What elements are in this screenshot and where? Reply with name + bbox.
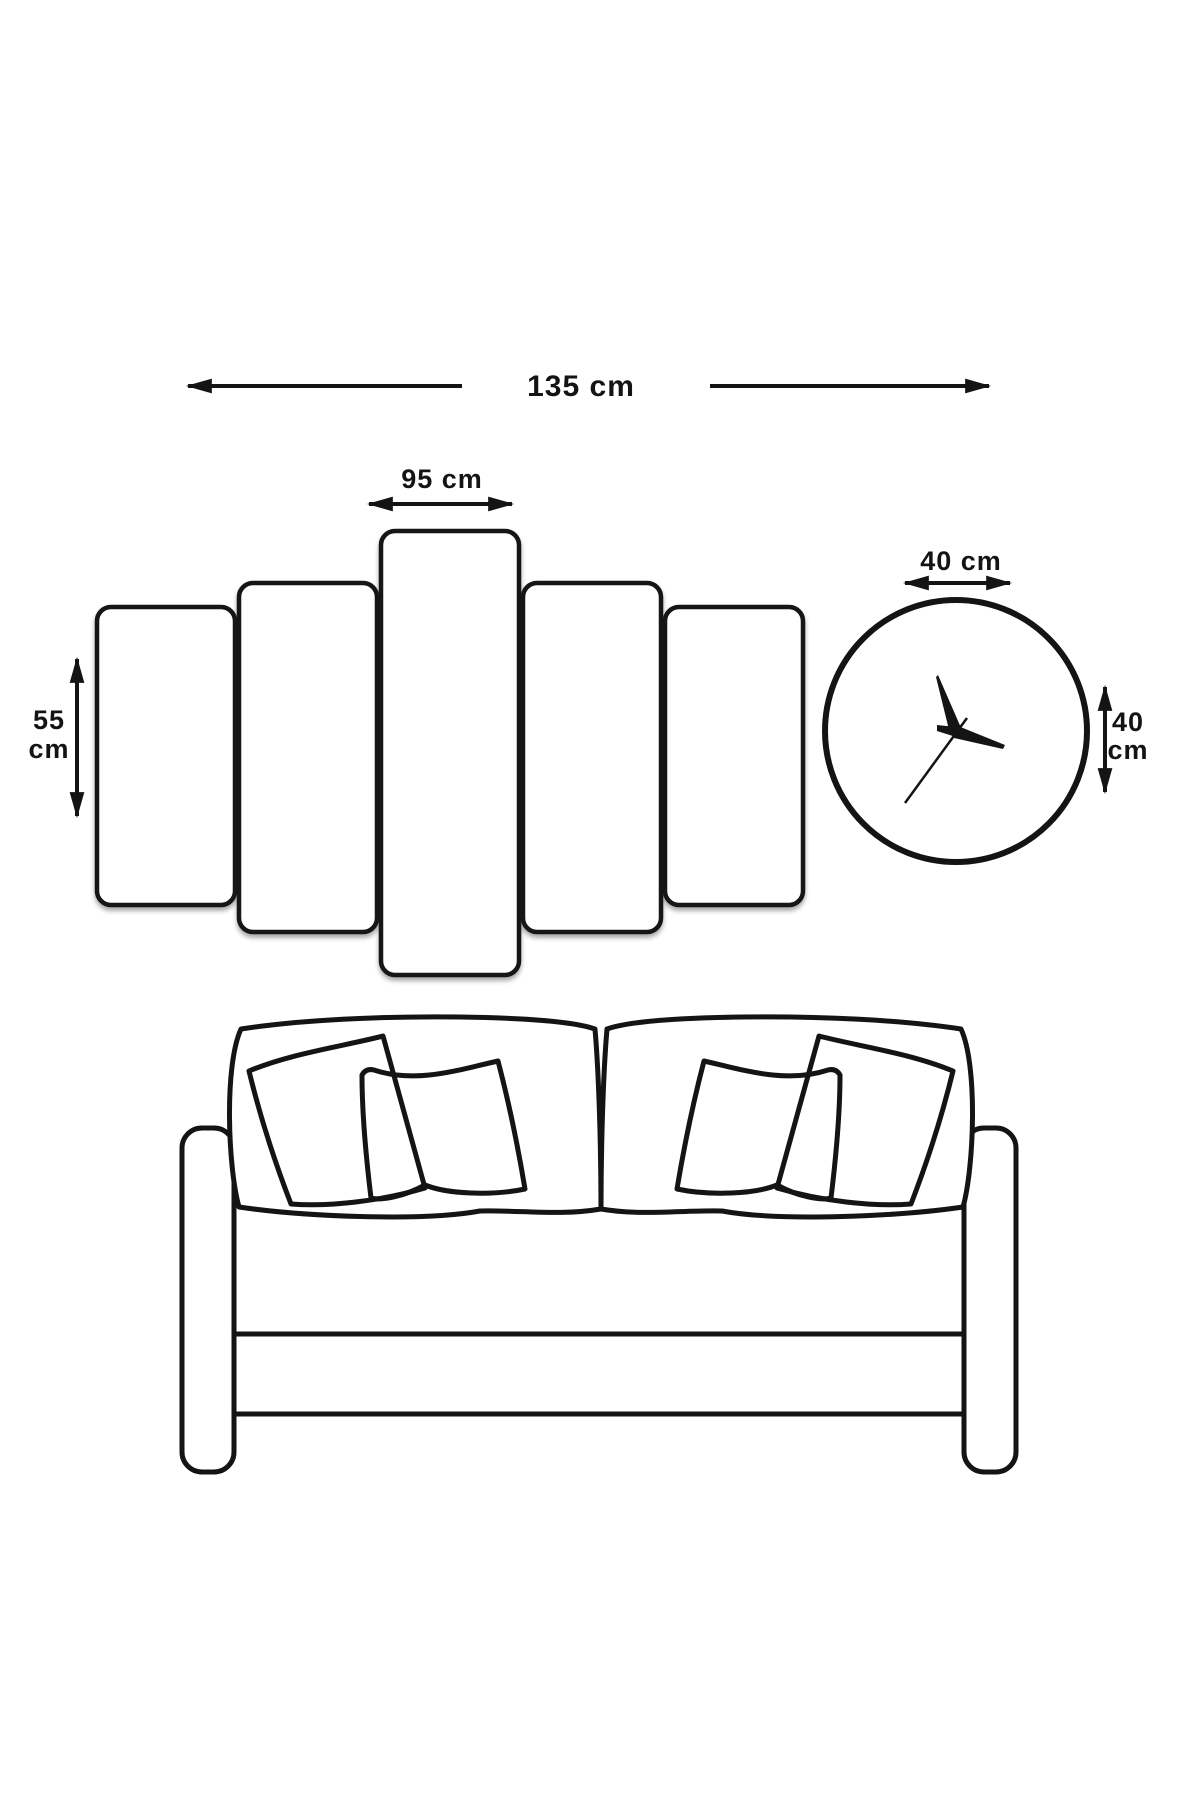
total-width-label: 135 cm (527, 370, 635, 403)
side-panel-height-label-line1: 55 (33, 705, 65, 735)
panel-3-center (381, 531, 519, 975)
side-panel-height-dimension: 55 cm (28, 659, 77, 816)
side-panel-height-label-line2: cm (28, 734, 69, 764)
clock-width-label: 40 cm (920, 546, 1002, 576)
panel-5 (665, 607, 803, 905)
clock-height-label-line1: 40 (1112, 707, 1144, 737)
dimension-diagram-page: 135 cm 95 cm 55 cm 40 cm 40 cm (0, 0, 1200, 1800)
panel-2 (239, 583, 377, 932)
panel-set-diagram (97, 531, 803, 975)
center-panel-width-dimension: 95 cm (369, 464, 512, 504)
sofa-diagram (182, 1017, 1016, 1472)
clock-diagram: 40 cm 40 cm (825, 546, 1149, 862)
dimension-diagram: 135 cm 95 cm 55 cm 40 cm 40 cm (0, 0, 1200, 1800)
clock-center-pin (952, 728, 961, 737)
clock-height-label-line2: cm (1107, 735, 1148, 765)
total-width-dimension: 135 cm (188, 370, 989, 403)
sofa-right-armrest (964, 1128, 1016, 1472)
panel-1 (97, 607, 235, 905)
sofa-left-armrest (182, 1128, 234, 1472)
center-panel-width-label: 95 cm (401, 464, 483, 494)
panel-4 (523, 583, 661, 932)
